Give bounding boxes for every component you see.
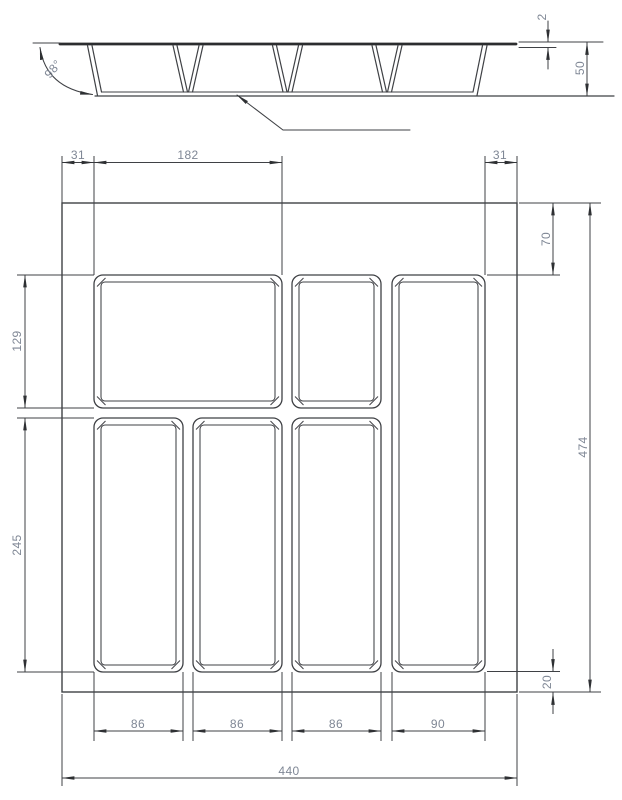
compartment-bottom-3: [292, 418, 381, 672]
technical-drawing-page: 98° 2 50 31 182 31 129 245 70 474 20 86 …: [0, 0, 622, 800]
dim-section-height-label: 50: [574, 61, 586, 75]
dim-top-row-height-label: 129: [11, 330, 23, 351]
technical-drawing-canvas: [0, 0, 622, 800]
thickness-dimension: [519, 21, 603, 69]
dim-right-top-offset-label: 70: [540, 232, 552, 246]
dim-col2-label: 86: [230, 718, 244, 730]
section-divider-3: [372, 46, 402, 93]
dim-overall-width-label: 440: [278, 765, 299, 777]
plan-view: [17, 156, 601, 786]
dim-right-margin-label: 31: [493, 149, 507, 161]
section-right-wall: [473, 46, 487, 96]
dim-col4-label: 90: [431, 718, 445, 730]
section-divider-1: [173, 46, 203, 93]
section-view: [33, 21, 614, 130]
dim-top-thickness-label: 2: [536, 13, 548, 20]
section-divider-2: [273, 46, 303, 93]
dim-overall-height-label: 474: [577, 436, 589, 457]
dim-bottom-offset-label: 20: [541, 675, 553, 689]
tray-outline: [62, 203, 517, 692]
dim-col1-label: 86: [131, 718, 145, 730]
dimension-lines: [25, 163, 590, 779]
dim-bottom-row-height-label: 245: [11, 534, 23, 555]
compartment-tall-right: [392, 275, 485, 672]
compartment-bottom-2: [193, 418, 282, 672]
section-left-wall: [88, 46, 102, 96]
dim-large-compartment-label: 182: [177, 149, 198, 161]
compartment-top-middle: [292, 275, 381, 408]
dim-col3-label: 86: [329, 718, 343, 730]
compartment-large: [94, 275, 282, 408]
compartment-bottom-1: [94, 418, 183, 672]
section-leader-line: [237, 95, 410, 130]
dim-left-margin-label: 31: [71, 149, 85, 161]
